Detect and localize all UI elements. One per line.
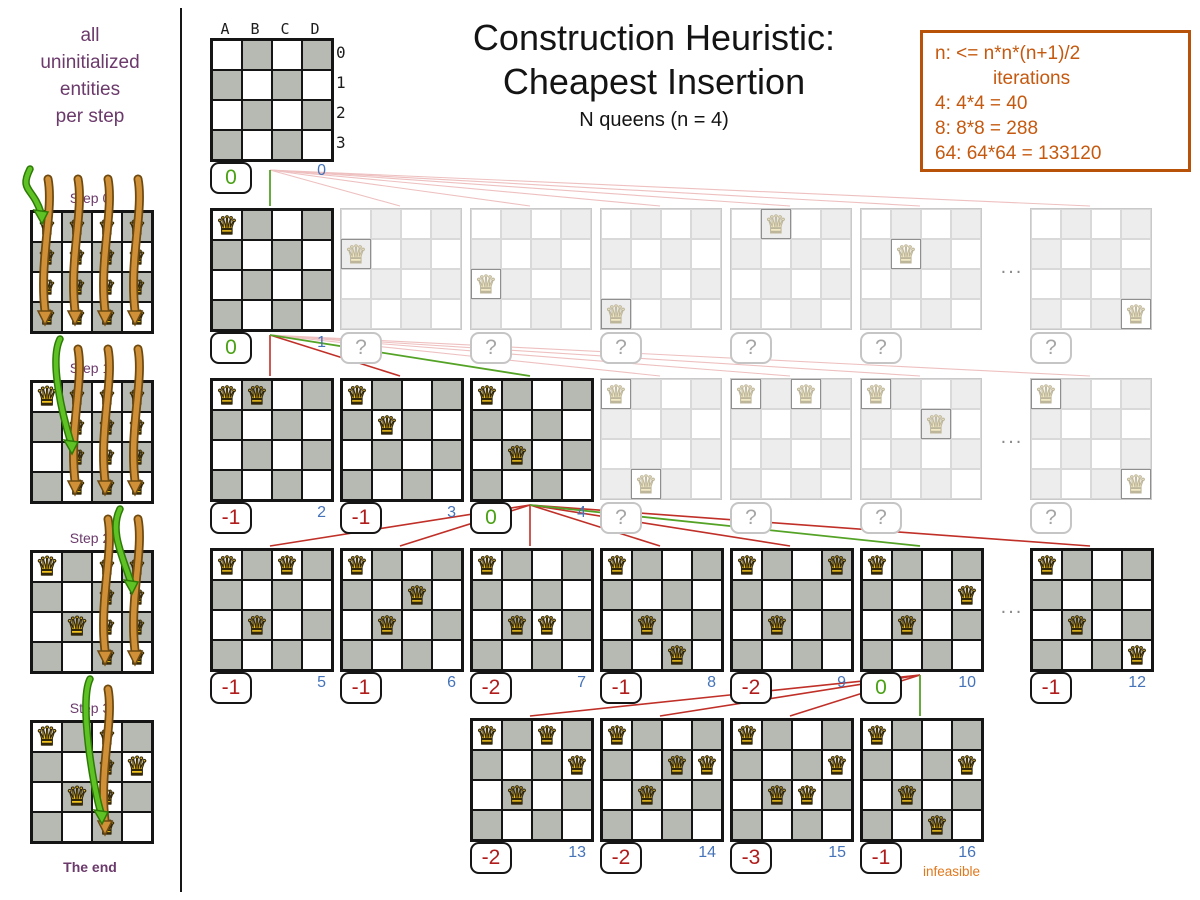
board-cell xyxy=(302,610,332,640)
board-cell xyxy=(951,239,981,269)
board-cell xyxy=(952,550,982,580)
board-cell xyxy=(272,640,302,670)
board-cell xyxy=(32,582,62,612)
board-cell xyxy=(302,40,332,70)
iteration-label: 14 xyxy=(600,844,716,862)
board-cell: ♛ xyxy=(122,442,152,472)
board-cell xyxy=(212,270,242,300)
title-line-1: Construction Heuristic: xyxy=(398,16,910,60)
score-badge: ? xyxy=(470,332,512,364)
board-cell xyxy=(631,269,661,299)
board-cell: ♛ xyxy=(822,550,852,580)
board-cell xyxy=(302,470,332,500)
queen-icon: ♛ xyxy=(98,647,116,667)
board-cell xyxy=(822,610,852,640)
board-cell xyxy=(951,439,981,469)
board-cell xyxy=(272,470,302,500)
queen-icon: ♛ xyxy=(765,212,787,237)
board-cell xyxy=(502,720,532,750)
board-cell: ♛ xyxy=(62,382,92,412)
score-badge: ? xyxy=(1030,332,1072,364)
board-cell xyxy=(731,209,761,239)
board-cell xyxy=(502,640,532,670)
candidate-board-unevaluated: ♛ xyxy=(340,208,462,330)
queen-icon: ♛ xyxy=(736,553,758,578)
board-cell xyxy=(1121,379,1151,409)
row-label: 1 xyxy=(336,68,352,98)
queen-icon: ♛ xyxy=(376,613,398,638)
board-cell xyxy=(861,469,891,499)
board-cell xyxy=(402,640,432,670)
board-cell xyxy=(471,239,501,269)
candidate-board-unevaluated: ♛ xyxy=(1030,208,1152,330)
candidate-board: ♛♛♛ xyxy=(860,548,984,672)
queen-icon: ♛ xyxy=(766,783,788,808)
board-cell: ♛ xyxy=(122,552,152,582)
board-cell: ♛ xyxy=(1121,299,1151,329)
board-cell xyxy=(212,640,242,670)
board-cell xyxy=(562,610,592,640)
queen-icon: ♛ xyxy=(475,272,497,297)
candidate-board: ♛♛♛♛ xyxy=(600,718,724,842)
board-cell: ♛ xyxy=(92,272,122,302)
board-cell xyxy=(952,610,982,640)
board-cell xyxy=(602,610,632,640)
board-cell xyxy=(692,580,722,610)
board-cell xyxy=(762,720,792,750)
board-cell xyxy=(601,209,631,239)
vertical-divider xyxy=(180,8,182,892)
info-line: 8: 8*8 = 288 xyxy=(935,116,1178,141)
queen-icon: ♛ xyxy=(476,383,498,408)
queen-icon: ♛ xyxy=(536,723,558,748)
connector-line xyxy=(270,170,1090,206)
board-cell xyxy=(861,439,891,469)
board-cell: ♛ xyxy=(62,212,92,242)
board-cell: ♛ xyxy=(761,209,791,239)
board-cell xyxy=(272,380,302,410)
queen-icon: ♛ xyxy=(38,247,56,267)
board-cell: ♛ xyxy=(632,610,662,640)
queen-icon: ♛ xyxy=(98,587,116,607)
queen-icon: ♛ xyxy=(246,613,268,638)
score-badge: ? xyxy=(730,332,772,364)
board-cell: ♛ xyxy=(662,750,692,780)
board-cell xyxy=(922,580,952,610)
board-cell xyxy=(242,100,272,130)
queen-icon: ♛ xyxy=(896,783,918,808)
queen-icon: ♛ xyxy=(216,213,238,238)
board-cell xyxy=(272,40,302,70)
queen-icon: ♛ xyxy=(98,817,116,837)
board-cell xyxy=(791,409,821,439)
board-cell: ♛ xyxy=(1062,610,1092,640)
board-cell xyxy=(402,380,432,410)
board-cell: ♛ xyxy=(791,379,821,409)
board-cell xyxy=(862,640,892,670)
queen-icon: ♛ xyxy=(376,413,398,438)
iteration-label: 1 xyxy=(210,334,326,352)
board-cell xyxy=(242,440,272,470)
step-label: Step 1 xyxy=(30,360,150,376)
board-cell: ♛ xyxy=(862,550,892,580)
board-cell xyxy=(302,130,332,160)
board-cell xyxy=(862,780,892,810)
board-cell xyxy=(821,409,851,439)
board-cell: ♛ xyxy=(342,550,372,580)
queen-icon: ♛ xyxy=(605,302,627,327)
queen-icon: ♛ xyxy=(98,757,116,777)
queen-icon: ♛ xyxy=(406,583,428,608)
board-cell xyxy=(951,269,981,299)
board-cell xyxy=(791,269,821,299)
board-cell xyxy=(242,240,272,270)
board-cell xyxy=(212,440,242,470)
board-cell xyxy=(762,580,792,610)
board-cell: ♛ xyxy=(92,212,122,242)
candidate-board: ♛♛♛ xyxy=(340,548,464,672)
board-cell xyxy=(602,640,632,670)
board-cell xyxy=(1061,409,1091,439)
board-cell xyxy=(632,640,662,670)
board-cell xyxy=(212,470,242,500)
board-cell: ♛ xyxy=(732,550,762,580)
board-cell: ♛ xyxy=(122,612,152,642)
queen-icon: ♛ xyxy=(68,247,86,267)
queen-icon: ♛ xyxy=(736,723,758,748)
candidate-board-unevaluated: ♛ xyxy=(860,208,982,330)
board-cell xyxy=(1062,550,1092,580)
board-cell xyxy=(472,610,502,640)
board-cell xyxy=(431,239,461,269)
queen-icon: ♛ xyxy=(476,553,498,578)
candidate-board: ♛♛♛ xyxy=(470,548,594,672)
board-cell xyxy=(692,780,722,810)
caption-line: per step xyxy=(2,103,178,130)
board-cell: ♛ xyxy=(692,750,722,780)
board-cell: ♛ xyxy=(92,812,122,842)
board-cell xyxy=(1092,610,1122,640)
board-cell: ♛ xyxy=(471,269,501,299)
board-cell xyxy=(1092,550,1122,580)
queen-icon: ♛ xyxy=(536,613,558,638)
board-cell xyxy=(661,439,691,469)
board-cell xyxy=(921,379,951,409)
queen-icon: ♛ xyxy=(35,724,58,750)
board-cell xyxy=(791,469,821,499)
board-cell xyxy=(32,782,62,812)
board-cell: ♛ xyxy=(502,440,532,470)
board-cell: ♛ xyxy=(891,239,921,269)
board-cell: ♛ xyxy=(472,550,502,580)
board-cell xyxy=(371,299,401,329)
board-cell xyxy=(242,580,272,610)
board-cell xyxy=(761,409,791,439)
ellipsis-label: ... xyxy=(990,256,1034,279)
board-cell xyxy=(1091,239,1121,269)
board-cell xyxy=(501,239,531,269)
candidate-board: ♛♛ xyxy=(340,378,464,502)
board-cell xyxy=(951,209,981,239)
board-cell xyxy=(502,580,532,610)
caption-line: entities xyxy=(2,76,178,103)
board-cell xyxy=(792,720,822,750)
board-cell: ♛ xyxy=(632,780,662,810)
board-cell: ♛ xyxy=(122,382,152,412)
board-cell xyxy=(891,269,921,299)
board-cell xyxy=(1122,610,1152,640)
board-cell xyxy=(691,439,721,469)
board-cell xyxy=(821,469,851,499)
board-cell xyxy=(821,439,851,469)
board-cell xyxy=(272,440,302,470)
queen-icon: ♛ xyxy=(65,614,88,640)
board-cell xyxy=(1061,299,1091,329)
board-cell xyxy=(432,470,462,500)
board-cell xyxy=(562,410,592,440)
queen-icon: ♛ xyxy=(128,447,146,467)
queen-icon: ♛ xyxy=(346,553,368,578)
queen-icon: ♛ xyxy=(766,613,788,638)
board-cell xyxy=(341,269,371,299)
board-cell xyxy=(921,299,951,329)
row-label: 2 xyxy=(336,98,352,128)
board-cell xyxy=(212,70,242,100)
board-cell xyxy=(1062,640,1092,670)
iteration-label: 12 xyxy=(1030,674,1146,692)
board-cell xyxy=(791,239,821,269)
board-cell: ♛ xyxy=(62,302,92,332)
score-badge: ? xyxy=(860,502,902,534)
queen-icon: ♛ xyxy=(68,217,86,237)
board-cell xyxy=(731,439,761,469)
board-cell xyxy=(472,640,502,670)
board-cell xyxy=(272,580,302,610)
board-cell xyxy=(731,269,761,299)
board-cell xyxy=(32,642,62,672)
queen-icon: ♛ xyxy=(606,723,628,748)
queen-icon: ♛ xyxy=(128,247,146,267)
board-cell xyxy=(531,209,561,239)
board-cell xyxy=(122,812,152,842)
board-cell xyxy=(372,550,402,580)
candidate-board: ♛♛ xyxy=(470,378,594,502)
board-cell xyxy=(892,580,922,610)
iteration-label: 6 xyxy=(340,674,456,692)
board-cell xyxy=(862,580,892,610)
board-cell: ♛ xyxy=(762,610,792,640)
queen-icon: ♛ xyxy=(98,727,116,747)
queen-icon: ♛ xyxy=(566,753,588,778)
board-cell xyxy=(761,469,791,499)
queen-icon: ♛ xyxy=(696,753,718,778)
queen-icon: ♛ xyxy=(795,382,817,407)
board-cell xyxy=(341,299,371,329)
board-cell xyxy=(761,379,791,409)
board-cell xyxy=(821,209,851,239)
score-badge: ? xyxy=(1030,502,1072,534)
iteration-label: 0 xyxy=(210,162,326,180)
board-cell: ♛ xyxy=(62,612,92,642)
board-cell xyxy=(372,580,402,610)
board-cell xyxy=(432,440,462,470)
board-cell xyxy=(691,379,721,409)
board-cell xyxy=(342,580,372,610)
board-cell xyxy=(32,612,62,642)
board-cell xyxy=(32,412,62,442)
step-label: Step 2 xyxy=(30,530,150,546)
queen-icon: ♛ xyxy=(98,617,116,637)
queen-icon: ♛ xyxy=(276,553,298,578)
board-cell xyxy=(242,130,272,160)
board-cell xyxy=(472,580,502,610)
board-cell xyxy=(921,269,951,299)
board-cell xyxy=(821,269,851,299)
candidate-board: ♛♛♛ xyxy=(600,548,724,672)
queen-icon: ♛ xyxy=(98,417,116,437)
board-cell xyxy=(562,640,592,670)
board-cell xyxy=(531,269,561,299)
board-cell: ♛ xyxy=(122,642,152,672)
board-cell xyxy=(662,780,692,810)
board-cell xyxy=(891,379,921,409)
board-cell xyxy=(662,550,692,580)
board-cell xyxy=(242,210,272,240)
board-cell: ♛ xyxy=(1032,550,1062,580)
board-cell xyxy=(691,299,721,329)
board-cell xyxy=(402,550,432,580)
board-cell xyxy=(401,269,431,299)
board-cell xyxy=(372,640,402,670)
board-cell xyxy=(1061,209,1091,239)
board-cell: ♛ xyxy=(762,780,792,810)
board-cell xyxy=(821,379,851,409)
board-cell xyxy=(861,269,891,299)
board-cell xyxy=(892,750,922,780)
connector-line xyxy=(270,335,1090,376)
queen-icon: ♛ xyxy=(636,613,658,638)
board-cell: ♛ xyxy=(62,272,92,302)
board-cell: ♛ xyxy=(212,380,242,410)
queen-icon: ♛ xyxy=(896,613,918,638)
board-cell xyxy=(661,379,691,409)
candidate-board: ♛♛♛♛ xyxy=(860,718,984,842)
board-cell: ♛ xyxy=(532,610,562,640)
board-cell xyxy=(401,299,431,329)
board-cell: ♛ xyxy=(92,582,122,612)
iteration-label: 15 xyxy=(730,844,846,862)
board-cell xyxy=(502,470,532,500)
board-cell xyxy=(472,410,502,440)
board-cell xyxy=(1121,269,1151,299)
board-cell: ♛ xyxy=(92,752,122,782)
board-cell xyxy=(62,552,92,582)
board-cell xyxy=(1031,269,1061,299)
candidate-board-unevaluated: ♛♛ xyxy=(860,378,982,500)
board-cell xyxy=(272,240,302,270)
queen-icon: ♛ xyxy=(68,447,86,467)
board-cell xyxy=(792,550,822,580)
board-cell xyxy=(892,550,922,580)
board-cell xyxy=(922,780,952,810)
board-cell xyxy=(761,239,791,269)
queen-icon: ♛ xyxy=(68,477,86,497)
board-cell: ♛ xyxy=(792,780,822,810)
board-cell: ♛ xyxy=(32,722,62,752)
board-cell xyxy=(242,470,272,500)
board-cell xyxy=(562,440,592,470)
board-cell: ♛ xyxy=(272,550,302,580)
board-cell: ♛ xyxy=(122,582,152,612)
queen-icon: ♛ xyxy=(128,617,146,637)
board-cell xyxy=(32,472,62,502)
board-cell xyxy=(561,209,591,239)
queen-icon: ♛ xyxy=(128,477,146,497)
board-cell: ♛ xyxy=(892,780,922,810)
board-cell xyxy=(502,550,532,580)
board-cell xyxy=(822,810,852,840)
board-cell xyxy=(862,610,892,640)
board-cell xyxy=(242,40,272,70)
board-cell xyxy=(62,812,92,842)
board-cell xyxy=(1121,409,1151,439)
board-cell xyxy=(431,269,461,299)
board-cell xyxy=(601,269,631,299)
board-cell xyxy=(561,239,591,269)
board-cell: ♛ xyxy=(602,720,632,750)
board-cell xyxy=(1031,209,1061,239)
board-cell xyxy=(662,580,692,610)
board-cell xyxy=(602,750,632,780)
score-badge: ? xyxy=(600,502,642,534)
board-cell xyxy=(731,239,761,269)
board-cell xyxy=(1061,469,1091,499)
queen-icon: ♛ xyxy=(826,753,848,778)
board-cell xyxy=(631,209,661,239)
queen-icon: ♛ xyxy=(68,387,86,407)
board-cell xyxy=(371,269,401,299)
board-cell xyxy=(922,750,952,780)
board-cell xyxy=(631,409,661,439)
board-cell: ♛ xyxy=(402,580,432,610)
board-cell xyxy=(692,810,722,840)
board-cell xyxy=(661,239,691,269)
queen-icon: ♛ xyxy=(476,723,498,748)
board-cell xyxy=(432,610,462,640)
board-cell xyxy=(431,209,461,239)
board-cell xyxy=(272,70,302,100)
candidate-board: ♛♛♛ xyxy=(210,548,334,672)
iteration-label: 9 xyxy=(730,674,846,692)
candidate-board-unevaluated: ♛ xyxy=(730,208,852,330)
queen-icon: ♛ xyxy=(636,783,658,808)
board-cell: ♛ xyxy=(242,380,272,410)
board-cell: ♛ xyxy=(62,442,92,472)
board-cell xyxy=(631,299,661,329)
board-cell xyxy=(951,469,981,499)
board-cell xyxy=(822,720,852,750)
queen-icon: ♛ xyxy=(125,754,148,780)
board-cell xyxy=(302,440,332,470)
board-cell xyxy=(532,380,562,410)
ellipsis-label: ... xyxy=(990,596,1034,619)
board-cell: ♛ xyxy=(92,442,122,472)
board-cell: ♛ xyxy=(212,210,242,240)
board-cell xyxy=(821,239,851,269)
board-cell xyxy=(792,810,822,840)
queen-icon: ♛ xyxy=(895,242,917,267)
board-cell xyxy=(302,240,332,270)
